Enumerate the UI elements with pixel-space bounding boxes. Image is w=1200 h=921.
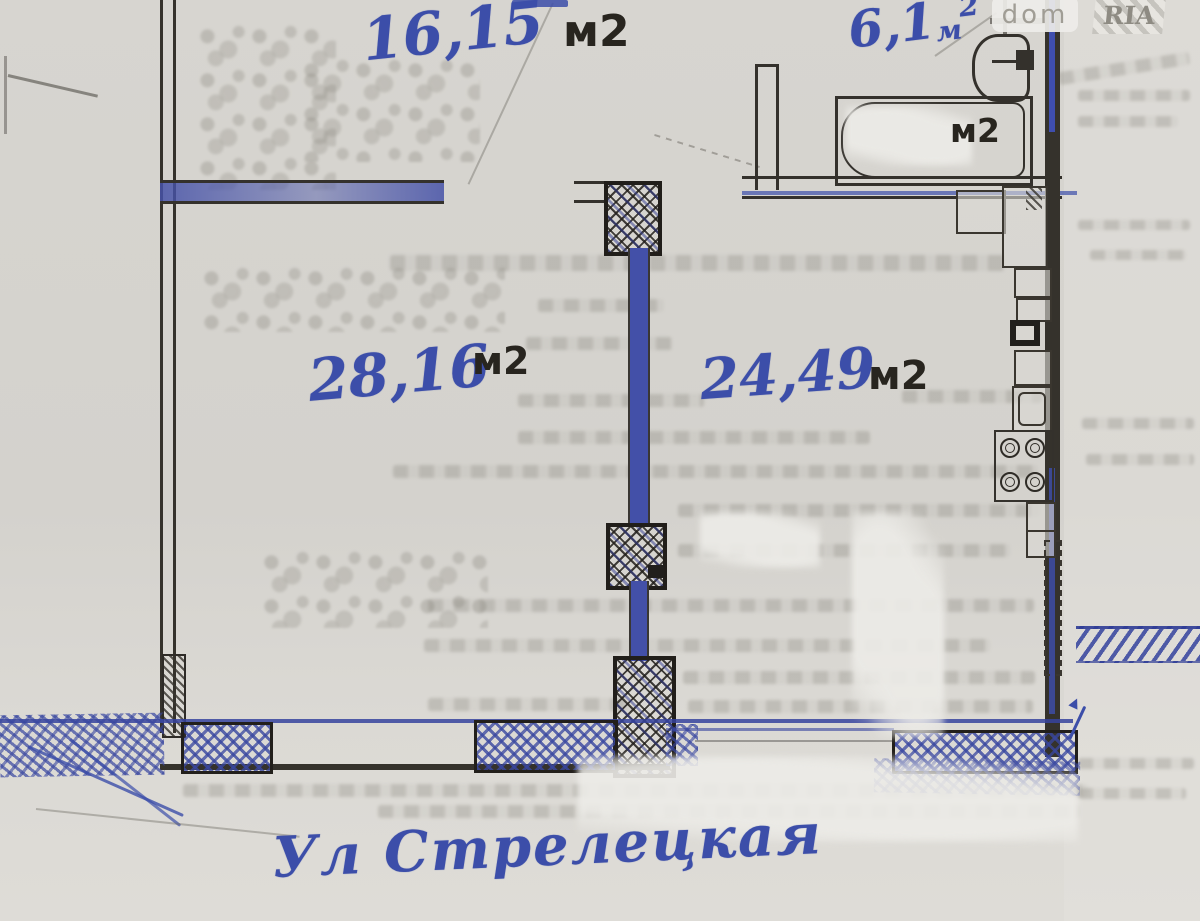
bath-area-value: 6,1: [845, 0, 939, 60]
street-name-handwritten: Ул Стрелецкая: [271, 806, 824, 886]
room-area-living-unit: м2: [472, 342, 530, 380]
ghost-text-line: [1082, 418, 1194, 429]
watermark-ria: RIA: [1092, 0, 1166, 34]
ghost-text-line: [1090, 250, 1186, 260]
crease-line: [8, 74, 98, 98]
room-area-kitchen-handwritten: 24,49: [698, 340, 877, 408]
ghost-text-line: [1078, 90, 1190, 101]
kitchen-unit: [1014, 350, 1052, 386]
ghost-text-line: [1078, 788, 1186, 799]
stove-burner: [1000, 438, 1020, 458]
ghost-text-line: [1078, 758, 1194, 769]
ghost-text-line: [1078, 220, 1190, 230]
ghost-text-line: [428, 698, 634, 711]
crease-line: [654, 134, 760, 168]
smudge: [700, 512, 820, 568]
room-area-living-handwritten: 28,16: [306, 336, 492, 410]
kitchen-sink-basin: [1018, 392, 1046, 426]
bathroom-partition-wall: [755, 64, 779, 190]
ghost-text-line: [393, 465, 1038, 478]
pen-arrow-head: [1068, 696, 1081, 709]
door-opening-stub: [574, 181, 608, 203]
pen-arrow: [1062, 698, 1092, 742]
left-wall-outer-line: [160, 0, 163, 733]
vent-shaft-hatch: [1026, 188, 1042, 210]
room-area-kitchen-unit: м2: [868, 356, 929, 396]
smudge: [852, 512, 944, 738]
bath-area-sup: 2: [957, 0, 980, 24]
bathtub-area-label: м2: [950, 114, 1000, 147]
kitchen-black-box: [1010, 320, 1040, 346]
ghost-text-line: [1086, 454, 1194, 465]
smudge: [260, 550, 488, 628]
smudge: [300, 58, 480, 162]
pier-top: [604, 181, 662, 256]
room-area-top-handwritten: 16,15: [359, 0, 546, 69]
ghost-text-line: [1078, 116, 1178, 127]
stove-burner: [1025, 472, 1045, 492]
kitchen-cabinet: [956, 190, 1006, 234]
edge-mark: [4, 56, 7, 134]
pier-middle-notch: [648, 565, 664, 578]
crease-line: [36, 808, 300, 838]
stove-burner: [1000, 472, 1020, 492]
kitchen-unit: [1026, 502, 1056, 532]
ghost-text-line: [518, 394, 704, 407]
center-wall-upper: [628, 248, 650, 525]
pier-middle: [606, 523, 667, 590]
bottom-opening-line: [695, 740, 895, 742]
stove: [994, 430, 1054, 502]
bath-area-unit: м: [934, 14, 963, 48]
top-room-wall: [160, 180, 444, 204]
pen-hatch-band-right: [1076, 626, 1200, 663]
radiator: [1044, 540, 1062, 676]
pen-arrow-stem: [1068, 706, 1086, 740]
smudge: [200, 266, 505, 332]
bottom-pier-left: [181, 722, 273, 774]
stove-burner: [1025, 438, 1045, 458]
room-area-bath-handwritten: 6,1м2: [845, 0, 982, 57]
floorplan-scan: м2 16,15 м2 6,1м2 28,16 м2 24,49 м2 Ул С…: [0, 0, 1200, 921]
ghost-text-line: [526, 337, 672, 350]
left-wall-inner-line: [173, 0, 176, 733]
kitchen-unit: [1014, 268, 1052, 298]
ghost-text-line: [518, 431, 870, 444]
pen-hatch-band-left: [0, 713, 165, 778]
sink-mount: [1016, 50, 1034, 70]
kitchen-unit: [1016, 298, 1052, 322]
room-area-top-unit: м2: [563, 10, 630, 54]
watermark-dom: dom: [992, 0, 1078, 32]
center-wall-lower: [629, 581, 649, 661]
